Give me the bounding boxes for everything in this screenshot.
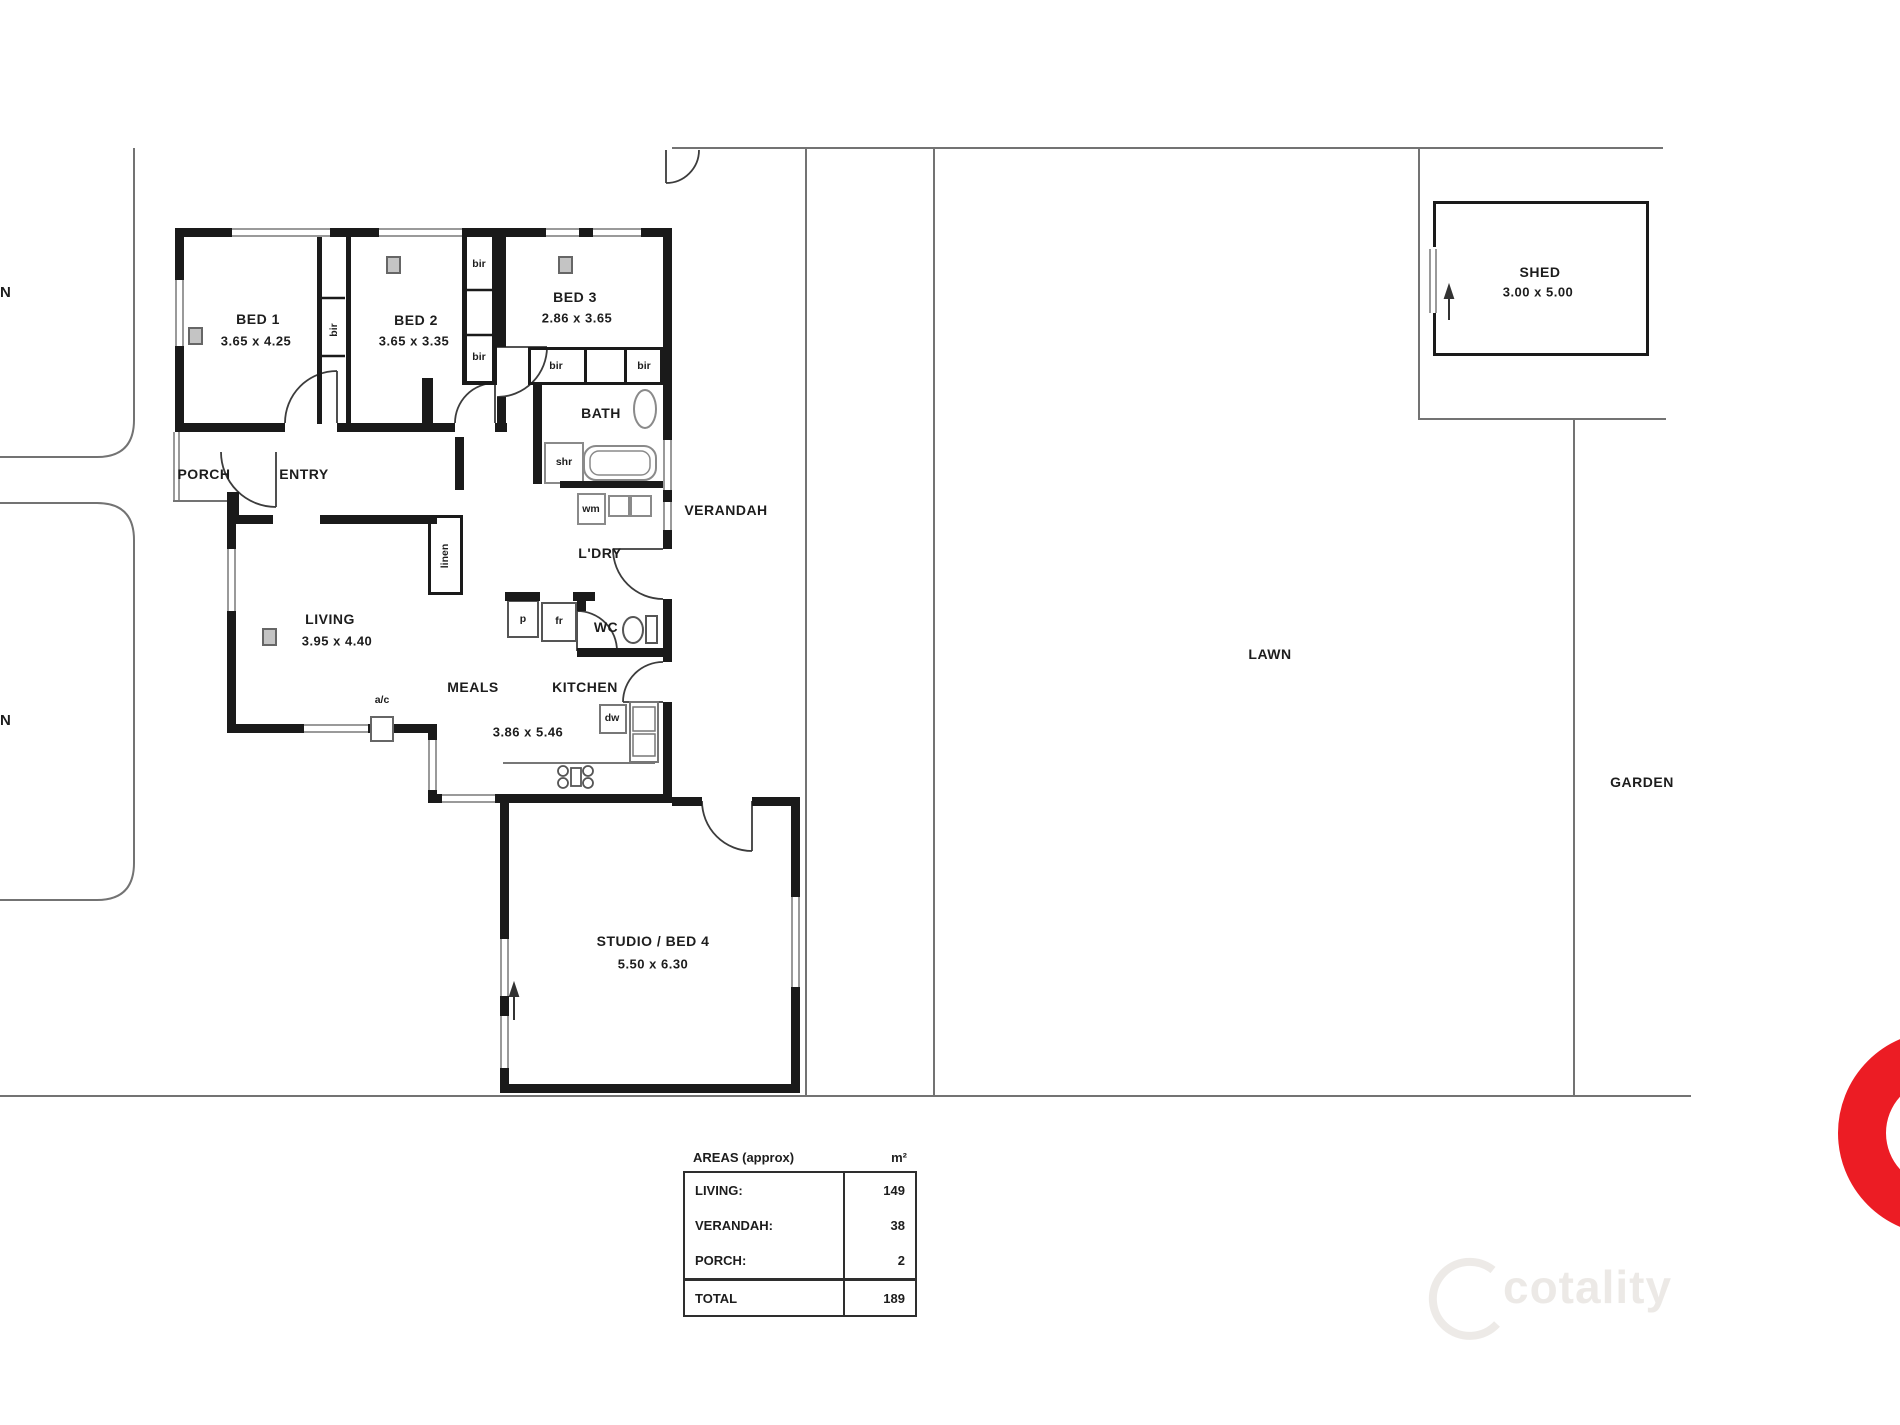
wall xyxy=(500,996,509,1016)
room-label-wc: WC xyxy=(594,619,618,635)
wall xyxy=(330,228,379,237)
wall xyxy=(579,228,593,237)
window xyxy=(379,228,462,237)
wall xyxy=(175,423,285,432)
wall xyxy=(791,797,800,897)
room-label-shed: SHED xyxy=(1520,264,1561,280)
ac-unit xyxy=(370,716,394,742)
wall xyxy=(227,724,304,733)
table-row: LIVING: 149 xyxy=(685,1173,915,1208)
shed-yard-left xyxy=(1418,148,1420,420)
room-dims-meals-kitchen: 3.86 x 5.46 xyxy=(493,725,564,740)
robe-wall xyxy=(317,237,322,424)
window xyxy=(227,549,236,611)
room-symbol xyxy=(558,256,573,274)
room-dims-bed3: 2.86 x 3.65 xyxy=(542,311,613,326)
wall xyxy=(320,515,437,524)
path-line-right xyxy=(933,148,935,1096)
wall xyxy=(227,515,236,549)
areas-table-title: AREAS (approx) xyxy=(693,1150,794,1165)
window xyxy=(232,228,330,237)
room-dims-shed: 3.00 x 5.00 xyxy=(1503,285,1574,300)
wall xyxy=(663,702,672,803)
wall xyxy=(227,611,236,733)
shed-wall xyxy=(1433,313,1436,353)
wall xyxy=(641,228,672,237)
wall xyxy=(337,423,455,432)
room-label-bath: BATH xyxy=(581,405,621,421)
area-label-lawn: LAWN xyxy=(1248,646,1291,662)
wall xyxy=(500,803,509,939)
room-label-porch: PORCH xyxy=(177,466,230,482)
room-symbol xyxy=(188,327,203,345)
floorplan-page: N N xyxy=(0,0,1900,1425)
watermark: cotality xyxy=(1425,1260,1672,1314)
window xyxy=(442,794,495,803)
wall xyxy=(500,1084,800,1093)
table-total-row: TOTAL 189 xyxy=(685,1278,915,1315)
fixture-label-ac: a/c xyxy=(375,694,390,706)
areas-table-unit: m² xyxy=(891,1150,907,1165)
room-label-entry: ENTRY xyxy=(279,466,328,482)
fixture-label-bir: bir xyxy=(472,258,485,270)
wall xyxy=(495,794,672,803)
robe-wall xyxy=(462,381,497,385)
site-boundary-top xyxy=(672,147,1663,149)
room-label-bed3: BED 3 xyxy=(553,289,597,305)
watermark-text: cotality xyxy=(1503,1260,1672,1314)
room-label-bed1: BED 1 xyxy=(236,311,280,327)
wall xyxy=(577,648,672,657)
robe-wall xyxy=(346,237,351,424)
window xyxy=(546,228,579,237)
wall xyxy=(663,490,672,502)
fixture-label-fridge: fr xyxy=(555,615,563,627)
porch-edge xyxy=(173,500,227,502)
wall xyxy=(175,346,184,432)
wall xyxy=(672,797,702,806)
table-row: PORCH: 2 xyxy=(685,1243,915,1278)
window xyxy=(428,740,437,790)
wall xyxy=(663,530,672,549)
wall xyxy=(533,385,542,484)
window xyxy=(304,724,368,733)
site-boundary-bottom xyxy=(0,1095,1691,1097)
room-dims-studio: 5.50 x 6.30 xyxy=(618,957,689,972)
room-dims-bed2: 3.65 x 3.35 xyxy=(379,334,450,349)
shed-wall xyxy=(1433,204,1436,247)
wall xyxy=(422,378,433,430)
shed-wall xyxy=(1646,201,1649,356)
fixture-label-shr: shr xyxy=(556,456,572,468)
fixture-label-wm: wm xyxy=(582,503,600,515)
robe-wall xyxy=(462,237,467,385)
wall xyxy=(497,237,506,347)
room-label-verandah: VERANDAH xyxy=(684,502,767,518)
shed-door xyxy=(1429,249,1437,313)
room-label-studio: STUDIO / BED 4 xyxy=(597,933,710,949)
table-divider xyxy=(843,1173,845,1315)
room-symbol xyxy=(262,628,277,646)
wall xyxy=(237,515,273,524)
neighbor-label-1: N xyxy=(0,284,11,301)
room-dims-bed1: 3.65 x 4.25 xyxy=(221,334,292,349)
fixture-label-bir: bir xyxy=(472,351,485,363)
robe-wall xyxy=(584,347,587,385)
fixture-label-pantry: p xyxy=(520,613,526,625)
room-dims-living: 3.95 x 4.40 xyxy=(302,634,373,649)
window xyxy=(663,440,672,490)
room-label-meals: MEALS xyxy=(447,679,499,695)
wall xyxy=(573,592,595,601)
window xyxy=(791,897,800,987)
wall xyxy=(462,228,546,237)
wall xyxy=(663,237,672,440)
wall xyxy=(175,237,184,280)
wall xyxy=(560,481,663,488)
wall xyxy=(577,601,586,611)
shed-wall xyxy=(1433,201,1649,204)
wall xyxy=(505,592,540,601)
room-label-kitchen: KITCHEN xyxy=(552,679,618,695)
wall xyxy=(175,228,232,237)
lawn-garden-divider xyxy=(1573,419,1575,1096)
neighbor-label-2: N xyxy=(0,712,11,729)
room-label-bed2: BED 2 xyxy=(394,312,438,328)
area-label-garden: GARDEN xyxy=(1610,774,1674,790)
fixture-label-bir: bir xyxy=(637,360,650,372)
fixture-label-bir: bir xyxy=(328,323,340,336)
window xyxy=(175,280,184,346)
room-symbol xyxy=(386,256,401,274)
fixture-label-bir: bir xyxy=(549,360,562,372)
table-row: VERANDAH: 38 xyxy=(685,1208,915,1243)
robe-wall xyxy=(624,347,627,385)
shed-wall xyxy=(1433,353,1649,356)
window xyxy=(663,502,672,530)
areas-table: AREAS (approx) m² LIVING: 149 VERANDAH: … xyxy=(683,1150,917,1317)
shed-yard-bottom xyxy=(1418,418,1666,420)
floorplan-lines xyxy=(0,0,1900,1425)
wall xyxy=(428,794,442,803)
wall xyxy=(455,437,464,490)
path-line-left xyxy=(805,148,807,1096)
wall xyxy=(428,733,437,740)
fixture-label-linen: linen xyxy=(439,544,451,569)
wall xyxy=(663,599,672,662)
wall xyxy=(791,987,800,1093)
window xyxy=(593,228,641,237)
wall xyxy=(497,397,506,427)
fixture-label-dw: dw xyxy=(605,712,620,724)
brand-ring-logo xyxy=(1838,1031,1900,1235)
room-label-living: LIVING xyxy=(305,611,355,627)
room-label-ldry: L'DRY xyxy=(578,545,621,561)
